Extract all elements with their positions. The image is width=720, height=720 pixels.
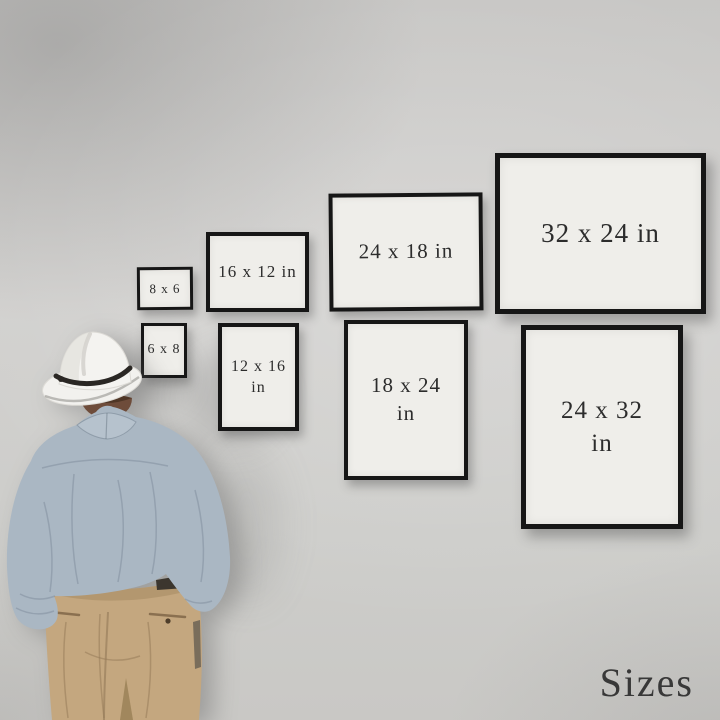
frame-18x24: 18 x 24in bbox=[344, 320, 468, 480]
frame-24x18: 24 x 18 in bbox=[328, 192, 483, 311]
man-figure bbox=[0, 322, 240, 720]
frame-32x24: 32 x 24 in bbox=[495, 153, 706, 314]
size-label-8x6: 8 x 6 bbox=[149, 280, 180, 297]
size-label-24x32: 24 x 32in bbox=[561, 394, 643, 460]
size-label-24x18: 24 x 18 in bbox=[359, 238, 454, 267]
trousers bbox=[44, 575, 202, 720]
frame-24x32: 24 x 32in bbox=[521, 325, 683, 529]
size-label-18x24: 18 x 24in bbox=[371, 372, 441, 427]
size-label-32x24: 32 x 24 in bbox=[541, 216, 660, 252]
frame-8x6: 8 x 6 bbox=[137, 267, 193, 310]
size-chart-scene: 8 x 6 6 x 8 16 x 12 in 12 x 16in 24 x 18… bbox=[0, 0, 720, 720]
sizes-title: Sizes bbox=[600, 659, 694, 706]
pocket-button bbox=[165, 618, 170, 623]
size-label-16x12: 16 x 12 in bbox=[218, 261, 296, 283]
frame-16x12: 16 x 12 in bbox=[206, 232, 309, 312]
